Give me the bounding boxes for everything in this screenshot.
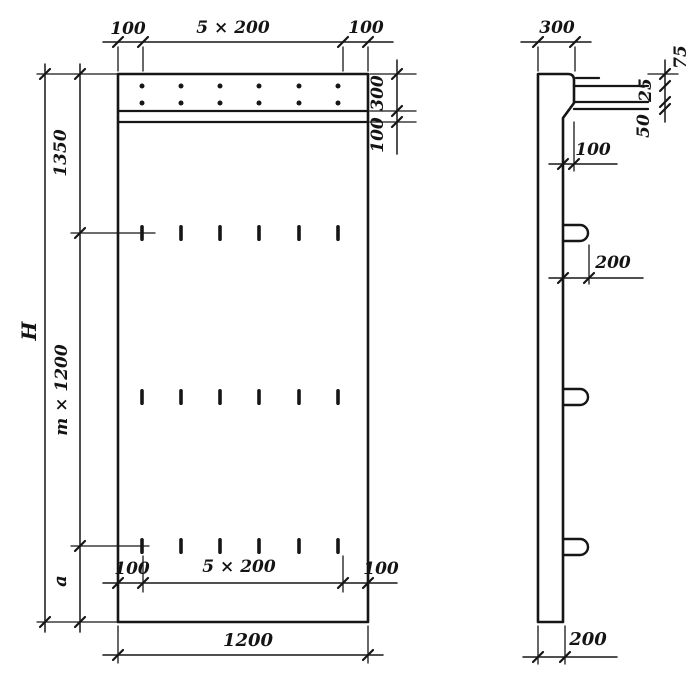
dim-label-loop-projection: 200 bbox=[594, 253, 631, 273]
slot-mark bbox=[257, 538, 261, 554]
dim-label-bottom-segment: a bbox=[50, 575, 71, 587]
dim-label-bottom-inner-right: 100 bbox=[363, 559, 399, 579]
lifting-loop bbox=[563, 539, 588, 555]
anchor-dot bbox=[218, 84, 223, 89]
dim-label-chain-50: 50 bbox=[634, 114, 654, 138]
anchor-dot bbox=[179, 101, 184, 106]
dim-label-middle-segment: m × 1200 bbox=[52, 344, 72, 436]
slot-mark bbox=[297, 389, 301, 405]
slot-mark bbox=[218, 389, 222, 405]
slot-mark bbox=[336, 389, 340, 405]
dim-label-overall-width: 1200 bbox=[223, 630, 274, 651]
anchor-dot bbox=[140, 101, 145, 106]
dim-label-bottom-inner-left: 100 bbox=[114, 559, 150, 579]
dim-label-top-right: 100 bbox=[348, 18, 384, 38]
slot-mark bbox=[297, 538, 301, 554]
anchor-dot bbox=[179, 84, 184, 89]
slot-mark bbox=[297, 225, 301, 241]
dim-label-top-segment: 1350 bbox=[51, 129, 71, 176]
dim-top-chain: 100 5 × 200 100 bbox=[103, 18, 393, 71]
dim-label-band-height: 300 bbox=[368, 75, 388, 111]
panel-technical-drawing: 100 5 × 200 100 300 100 bbox=[0, 0, 700, 700]
slot-mark bbox=[218, 538, 222, 554]
slot-mark bbox=[218, 225, 222, 241]
dim-label-side-top-width: 300 bbox=[539, 18, 575, 38]
anchor-dot bbox=[336, 101, 341, 106]
slot-mark bbox=[179, 538, 183, 554]
anchor-dot bbox=[257, 84, 262, 89]
dim-label-strip-height: 100 bbox=[368, 117, 388, 153]
slot-mark bbox=[336, 538, 340, 554]
dim-label-top-left: 100 bbox=[110, 19, 146, 39]
slot-mark bbox=[257, 389, 261, 405]
slot-mark bbox=[179, 225, 183, 241]
dim-label-overall-height: H bbox=[17, 320, 41, 341]
dim-label-bottom-thickness: 200 bbox=[568, 629, 607, 650]
dim-side-bottom-thickness: 200 bbox=[523, 626, 617, 664]
slot-mark bbox=[336, 225, 340, 241]
panel-outline bbox=[118, 74, 368, 622]
lifting-loop bbox=[563, 389, 588, 405]
anchor-dot bbox=[297, 101, 302, 106]
dim-label-bottom-inner-center: 5 × 200 bbox=[202, 557, 276, 577]
slot-mark bbox=[140, 389, 144, 405]
slot-mark bbox=[179, 389, 183, 405]
anchor-dot bbox=[336, 84, 341, 89]
dim-side-top-width: 300 bbox=[521, 18, 591, 71]
dim-label-step: 100 bbox=[575, 140, 611, 160]
front-view: 100 5 × 200 100 300 100 bbox=[17, 18, 416, 663]
anchor-dot bbox=[218, 101, 223, 106]
anchor-dot bbox=[297, 84, 302, 89]
drawing-sheet: 100 5 × 200 100 300 100 bbox=[0, 0, 700, 700]
dim-label-chain-25: 25 bbox=[636, 78, 656, 103]
dim-side-right-chain: 75 25 50 bbox=[634, 45, 691, 138]
dim-label-chain-75: 75 bbox=[671, 45, 691, 69]
dim-bottom-overall: 1200 bbox=[103, 626, 383, 663]
dim-label-top-center: 5 × 200 bbox=[196, 18, 270, 38]
slot-mark bbox=[257, 225, 261, 241]
anchor-dot bbox=[257, 101, 262, 106]
anchor-dot bbox=[140, 84, 145, 89]
dim-right-chain: 300 100 bbox=[368, 60, 416, 154]
lifting-loop bbox=[563, 225, 588, 241]
side-view: 300 75 25 50 100 bbox=[521, 18, 691, 664]
